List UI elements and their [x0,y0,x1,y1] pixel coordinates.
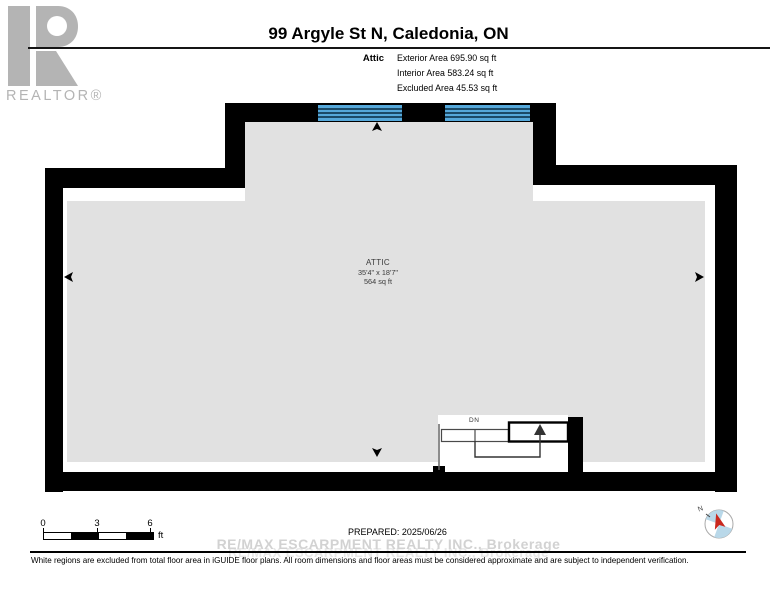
window-mullion [318,112,402,114]
scale-segment [99,533,126,539]
disclaimer-text: White regions are excluded from total fl… [31,556,689,565]
wall-right [715,165,737,492]
room-label: ATTIC 35'4" x 18'7" 564 sq ft [318,258,438,286]
realtor-logo [8,6,78,86]
prepared-date: PREPARED: 2025/06/26 [348,527,447,537]
window-mullion [318,116,402,118]
area-summary: Attic Exterior Area 695.90 sq ft Interio… [300,51,497,97]
room-dimensions: 35'4" x 18'7" [318,268,438,277]
scale-bar [43,532,154,540]
floorplan-sheet: REALTOR® 99 Argyle St N, Caledonia, ON A… [0,0,777,600]
compass-ring [705,510,733,538]
attic-main-floor [67,201,705,462]
floor-label: Attic [300,51,384,97]
compass-quadrant [706,506,724,524]
scale-unit-label: ft [158,530,163,541]
compass-needle [711,512,726,530]
attic-dormer-floor [245,122,533,203]
stairwell-opening [438,415,568,473]
window-right [445,105,530,122]
footer-divider [30,551,746,553]
window-mullion [445,112,530,114]
scale-segment [71,533,98,539]
wall-left [45,168,63,492]
compass-north-tick [706,514,710,517]
compass-north-label: N [697,505,704,513]
window-mullion [445,116,530,118]
page-title: 99 Argyle St N, Caledonia, ON [0,24,777,44]
interior-area: Interior Area 583.24 sq ft [397,66,497,81]
realtor-wordmark: REALTOR® [6,88,104,104]
wall-stub [433,466,445,476]
room-name: ATTIC [318,258,438,268]
wall-top-right [533,165,737,185]
scale-segment [44,533,71,539]
room-area: 564 sq ft [318,277,438,286]
realtor-r-icon [8,6,78,86]
area-stats: Exterior Area 695.90 sq ft Interior Area… [397,51,497,97]
excluded-area: Excluded Area 45.53 sq ft [397,81,497,96]
exterior-area: Exterior Area 695.90 sq ft [397,51,497,66]
scale-segment [126,533,153,539]
wall-top-left [45,168,245,188]
title-underline [28,47,770,49]
window-mullion [318,108,402,110]
wall-bottom [45,472,737,491]
wall-stairwell [568,417,583,473]
window-left [318,105,402,122]
window-mullion [445,108,530,110]
